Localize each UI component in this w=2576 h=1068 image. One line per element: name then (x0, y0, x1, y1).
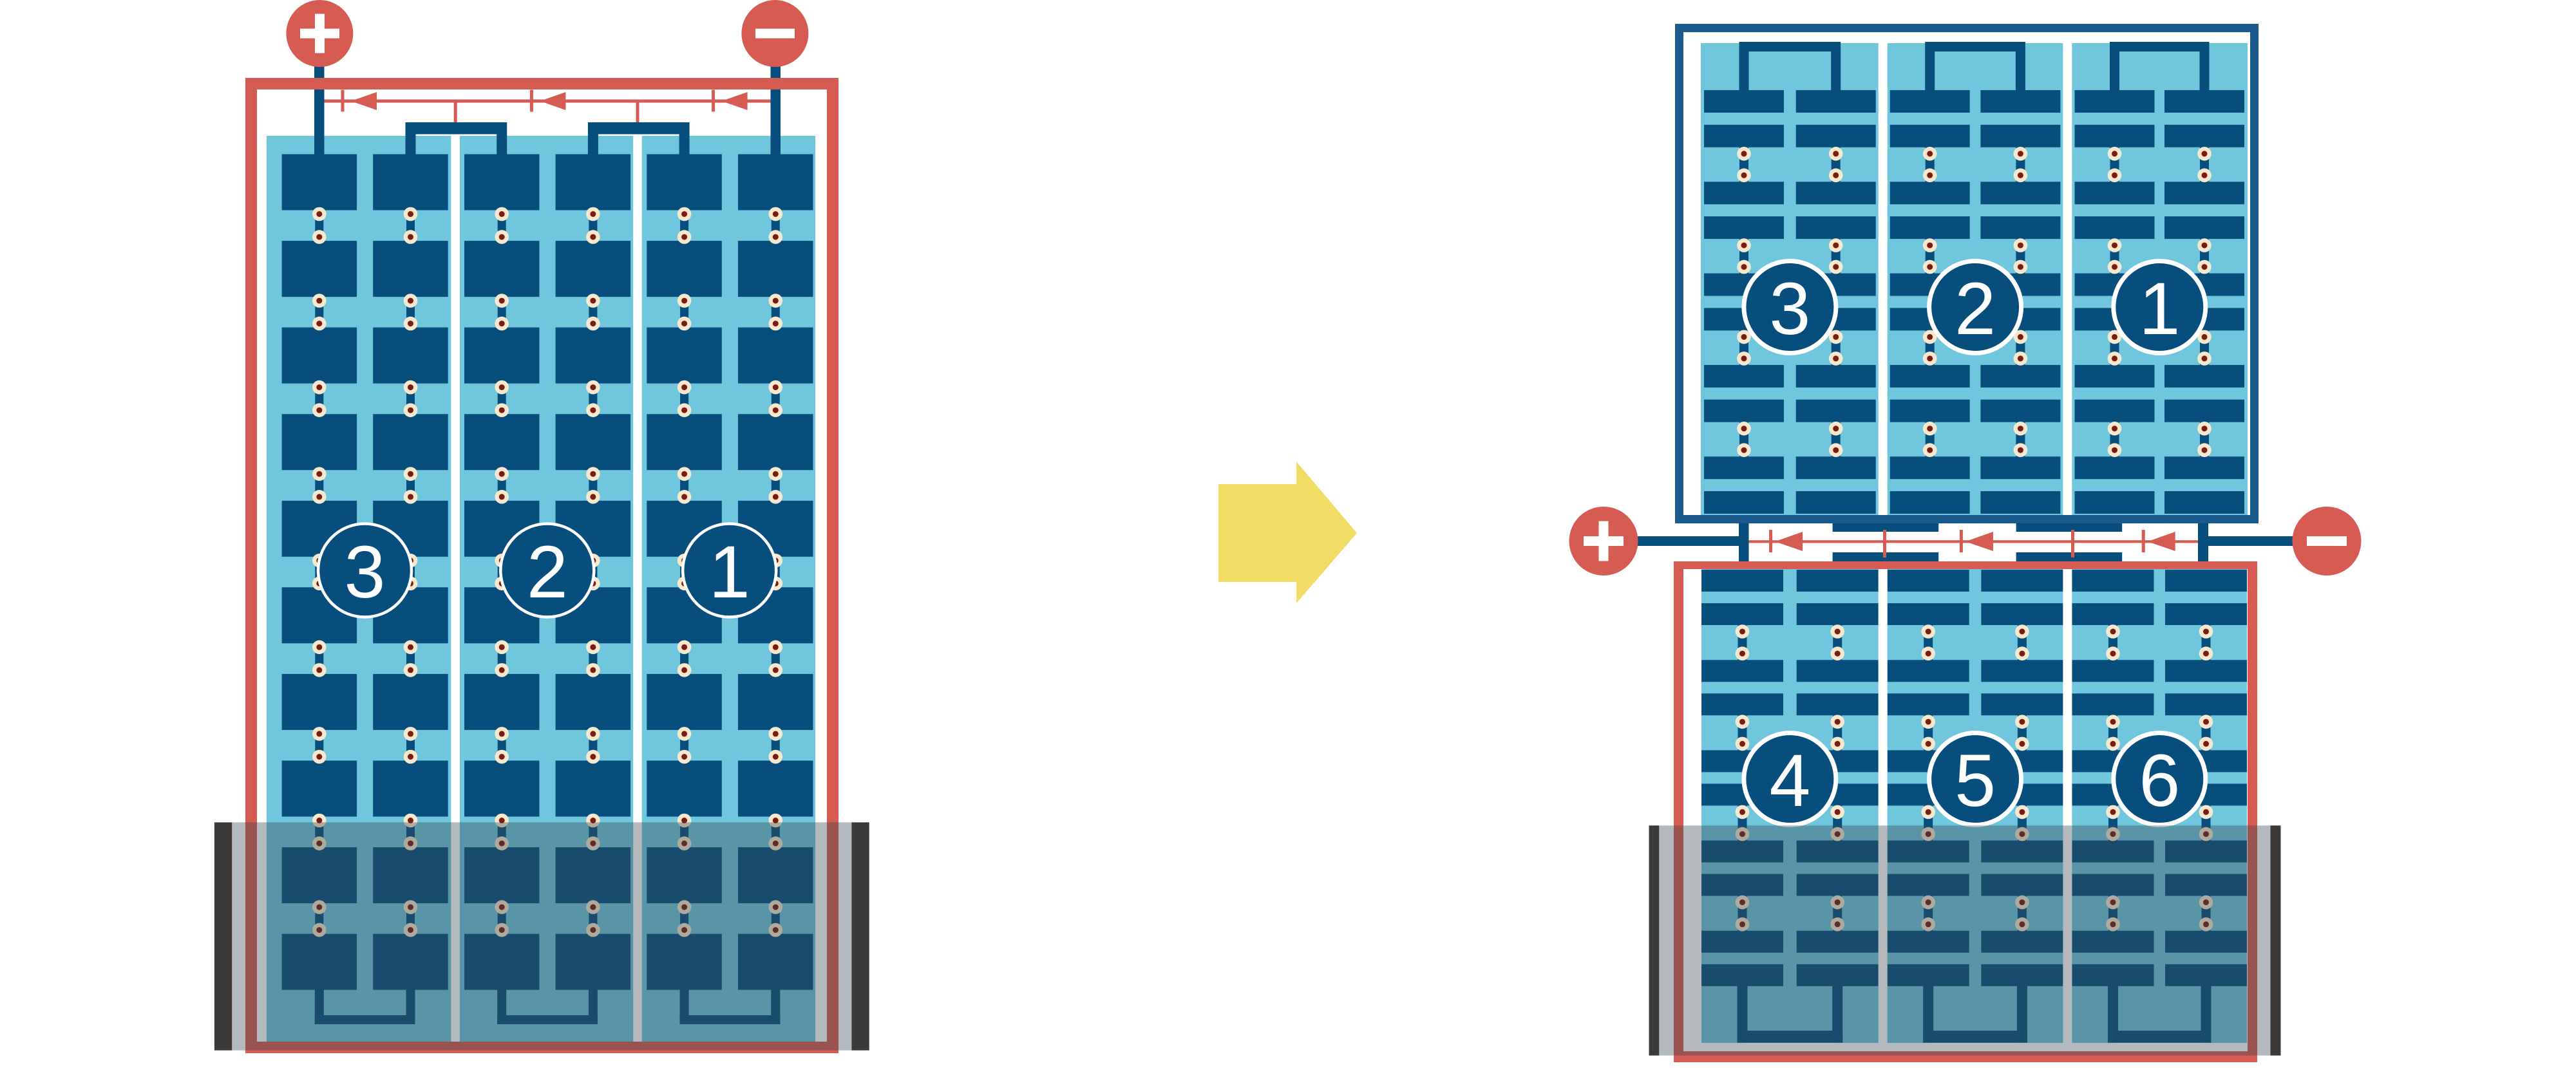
svg-text:4: 4 (1769, 740, 1810, 822)
svg-text:5: 5 (1955, 740, 1996, 822)
svg-text:2: 2 (1955, 268, 1996, 350)
svg-text:1: 1 (709, 531, 750, 614)
svg-text:2: 2 (527, 531, 568, 614)
svg-text:3: 3 (1769, 268, 1810, 350)
svg-text:1: 1 (2139, 268, 2180, 350)
svg-text:3: 3 (345, 531, 386, 614)
svg-text:6: 6 (2139, 740, 2180, 822)
